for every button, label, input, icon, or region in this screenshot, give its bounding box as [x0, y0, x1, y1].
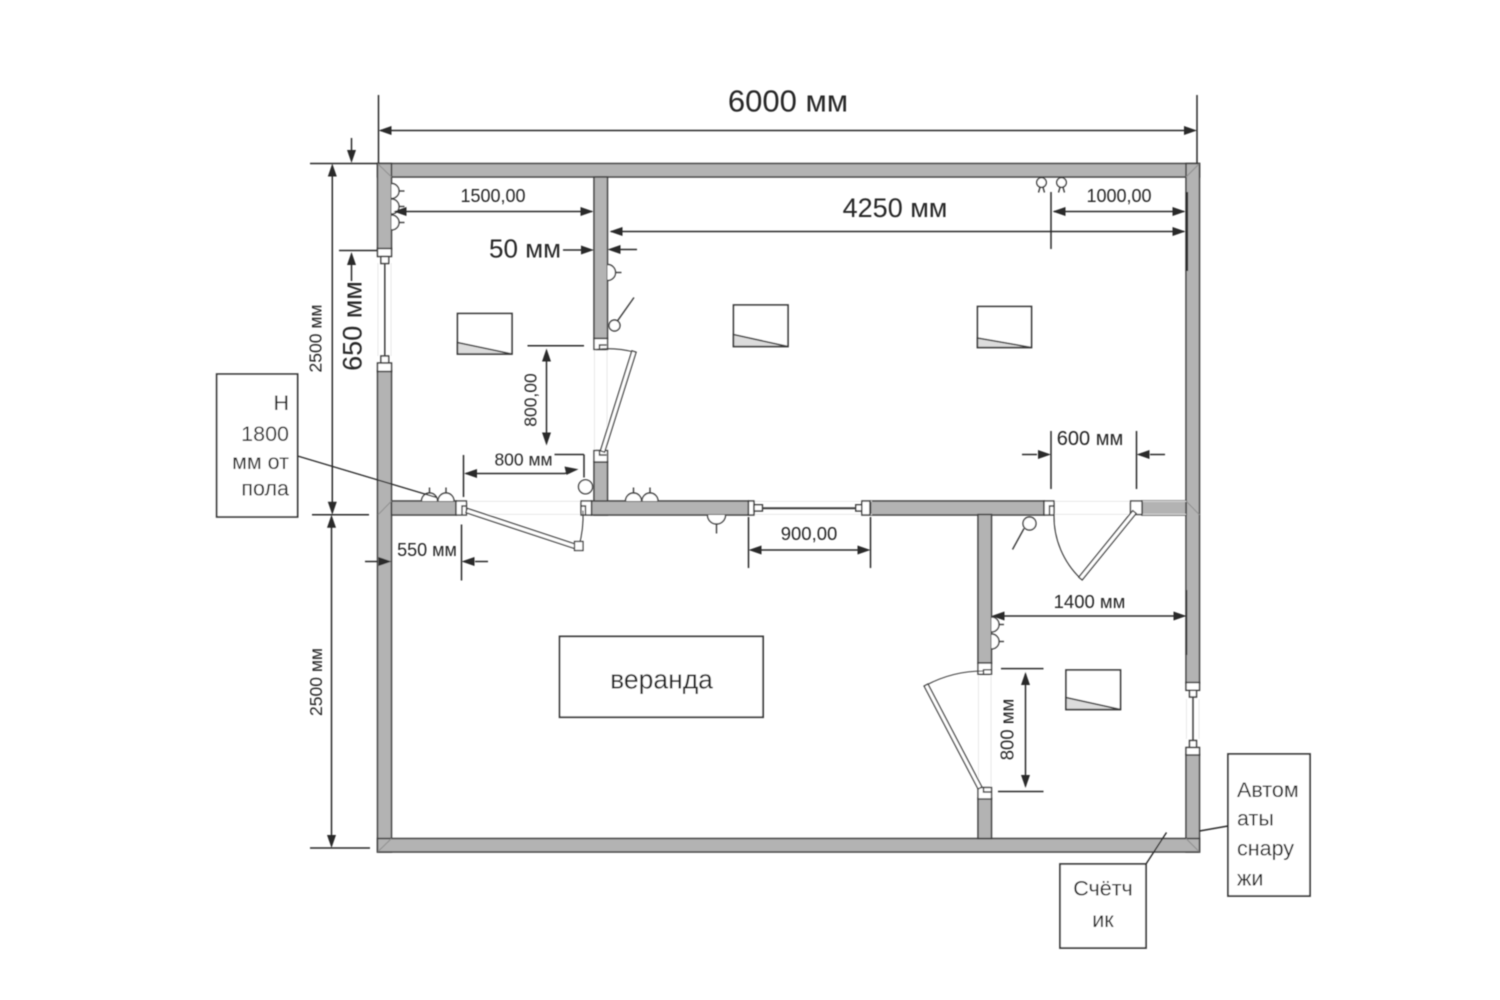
svg-text:мм от: мм от	[232, 450, 289, 474]
svg-text:50 мм: 50 мм	[489, 234, 561, 264]
svg-text:800,00: 800,00	[521, 373, 541, 427]
svg-text:600 мм: 600 мм	[1057, 428, 1123, 450]
svg-text:650 мм: 650 мм	[338, 281, 368, 371]
svg-text:пола: пола	[241, 477, 289, 501]
svg-text:800 мм: 800 мм	[997, 699, 1018, 760]
svg-text:550 мм: 550 мм	[397, 540, 457, 560]
svg-text:1500,00: 1500,00	[460, 186, 525, 206]
svg-text:Н: Н	[273, 391, 289, 415]
svg-text:аты: аты	[1237, 807, 1274, 831]
svg-text:Автом: Автом	[1237, 778, 1299, 802]
svg-text:2500 мм: 2500 мм	[306, 305, 326, 373]
svg-text:1400 мм: 1400 мм	[1054, 591, 1126, 612]
svg-text:800 мм: 800 мм	[494, 450, 552, 470]
svg-text:жи: жи	[1237, 867, 1263, 891]
svg-text:2500 мм: 2500 мм	[306, 648, 326, 716]
svg-text:1000,00: 1000,00	[1086, 186, 1151, 206]
svg-text:Счётч: Счётч	[1073, 877, 1133, 901]
svg-text:снару: снару	[1237, 837, 1294, 861]
svg-text:4250 мм: 4250 мм	[843, 193, 948, 223]
svg-text:6000 мм: 6000 мм	[728, 84, 848, 119]
svg-text:ик: ик	[1092, 908, 1114, 932]
svg-text:900,00: 900,00	[781, 523, 838, 544]
svg-text:веранда: веранда	[610, 665, 713, 695]
svg-text:1800: 1800	[241, 422, 289, 446]
